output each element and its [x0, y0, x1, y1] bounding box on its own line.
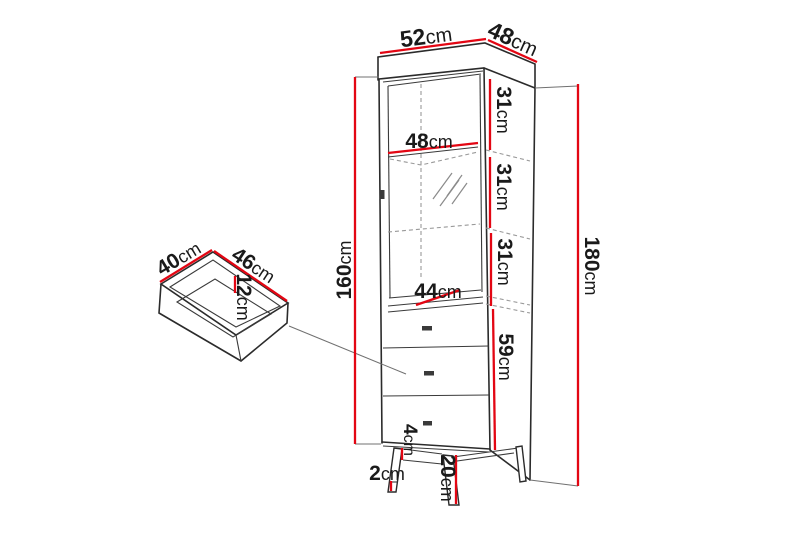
dim-label-foot: 2cm — [369, 462, 405, 485]
dim-value: 52 — [398, 23, 427, 52]
diagram-canvas: 52cm 48cm 48cm 31cm 31cm 31cm 160cm 180c… — [0, 0, 800, 533]
dim-value: 12 — [232, 273, 255, 296]
door-right-inner-edge — [480, 75, 482, 292]
dim-value: 160 — [333, 264, 356, 299]
cabinet-left-edge — [379, 79, 382, 443]
dim-unit: cm — [493, 187, 513, 211]
dim-label-interior-base: 44cm — [414, 280, 461, 303]
dim-label-section-top: 31cm — [492, 86, 515, 133]
shelf-3-side-dashed — [486, 296, 530, 305]
cabinet-back-edge — [530, 88, 535, 480]
glass-reflection-marks — [433, 173, 467, 206]
dim-label-interior-width: 48cm — [405, 130, 452, 153]
drawer-front-corner-edge — [236, 335, 241, 361]
dim-unit: cm — [335, 240, 355, 264]
dim-label-drawer-height: 12cm — [232, 273, 255, 320]
cabinet-top-front-edge — [379, 68, 535, 88]
dim-label-leg: 20cm — [436, 454, 459, 501]
dim-label-section-mid: 31cm — [492, 163, 515, 210]
dim-label-front-height: 160cm — [333, 240, 356, 299]
dim-unit: cm — [495, 357, 515, 381]
drawer-detail-inset — [159, 252, 406, 374]
dim-label-total-height: 180cm — [580, 236, 603, 295]
dim-label-section-bottom: 31cm — [493, 238, 516, 285]
dim-value: 2 — [369, 462, 381, 485]
dim-value: 59 — [494, 333, 517, 356]
shelf-1-back-dashed — [390, 152, 478, 165]
dim-value: 44 — [414, 280, 438, 303]
witness-180-bottom — [530, 480, 578, 486]
dim-value: 4 — [399, 424, 420, 435]
dim-value: 31 — [493, 238, 516, 262]
drawer-fronts — [383, 326, 489, 426]
dim-unit: cm — [494, 262, 514, 286]
back-right-leg — [516, 446, 526, 482]
dim-value: 48 — [405, 130, 429, 153]
dim-unit: cm — [493, 110, 513, 134]
witness-180-top — [535, 86, 578, 88]
dim-unit: cm — [438, 282, 462, 302]
shelf-1-side-dashed — [486, 150, 530, 161]
dim-value: 20 — [436, 454, 459, 477]
dim-unit: cm — [581, 272, 601, 296]
drawer-handle-3 — [423, 421, 432, 426]
dim-value: 31 — [492, 86, 515, 110]
dim-label-drawer-section: 59cm — [494, 333, 517, 380]
dim-unit: cm — [424, 24, 453, 49]
dim-unit: cm — [233, 297, 253, 321]
dim-value: 180 — [580, 236, 603, 271]
dim-value: 31 — [492, 163, 515, 187]
drawer-handle-1 — [422, 326, 432, 331]
dim-unit: cm — [429, 132, 453, 152]
door-left-inner-edge — [388, 86, 390, 298]
shelf-2-front-dashed — [388, 224, 480, 232]
drawer-divider-2 — [383, 395, 489, 396]
drawer-callout-line — [289, 326, 406, 374]
door-hinge — [380, 190, 385, 199]
dim-unit: cm — [437, 478, 457, 502]
dim-unit: cm — [381, 464, 405, 484]
dim-line-drawer-section-59 — [493, 309, 495, 450]
drawer-handle-2 — [424, 371, 434, 376]
glass-door — [380, 71, 484, 312]
furniture-dimension-diagram: 52cm 48cm 48cm 31cm 31cm 31cm 160cm 180c… — [0, 0, 800, 533]
dim-label-plinth: 4cm — [399, 424, 420, 456]
dim-unit: cm — [400, 435, 417, 456]
drawer-divider-1 — [383, 346, 489, 348]
